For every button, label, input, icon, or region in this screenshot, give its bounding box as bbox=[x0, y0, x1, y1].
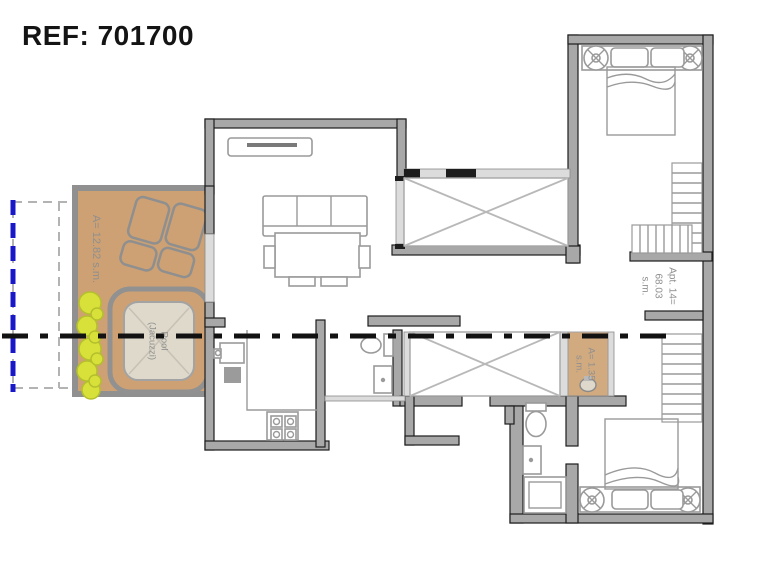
wc-basin-symbol bbox=[374, 366, 392, 393]
living-room bbox=[228, 138, 370, 286]
terrace-area-label: A= 12.82 s.m. bbox=[90, 215, 102, 283]
kitchen-sink-symbol bbox=[214, 343, 244, 363]
guest-wc bbox=[361, 334, 393, 393]
bedroom-bottom bbox=[580, 419, 700, 512]
kitchen-appliance bbox=[224, 367, 241, 383]
apartment-area-label: s.m. bbox=[640, 277, 651, 296]
shower-symbol bbox=[524, 477, 566, 513]
pillow bbox=[651, 48, 684, 67]
floorplan-svg: A= 12.82 s.m. Pool (Jacuzzi) Apt. 14= 68… bbox=[0, 0, 775, 570]
kitchen-hob-symbol bbox=[267, 412, 298, 440]
shaft-lower bbox=[410, 332, 560, 396]
dashed-extension-outline bbox=[13, 202, 75, 388]
sofa bbox=[263, 196, 367, 236]
bedroom-top bbox=[582, 46, 702, 135]
bedside-lamp-symbol bbox=[584, 46, 608, 70]
pool-label: (Jacuzzi) bbox=[147, 322, 158, 360]
bath-basin-symbol bbox=[523, 446, 541, 474]
floorplan-canvas: REF: 701700 bbox=[0, 0, 775, 570]
pillow bbox=[651, 490, 683, 509]
shaft-area-label: A= 1.35 bbox=[586, 347, 597, 380]
apartment-area-label: Apt. 14= bbox=[667, 267, 678, 305]
pillow bbox=[611, 48, 648, 67]
pool-label: Pool bbox=[159, 331, 170, 350]
pillow bbox=[612, 490, 648, 509]
shaft-upper bbox=[404, 178, 568, 246]
stairs-upper bbox=[632, 163, 702, 253]
walls bbox=[205, 35, 713, 524]
bed-mattress bbox=[605, 419, 678, 489]
bedside-lamp-symbol bbox=[580, 488, 604, 512]
kitchen bbox=[214, 330, 318, 440]
bathroom bbox=[523, 403, 566, 513]
shaft-area-label: s.m. bbox=[574, 355, 585, 373]
tv-console bbox=[228, 138, 312, 156]
stairs-lower bbox=[662, 334, 702, 422]
bath-toilet-symbol bbox=[526, 403, 546, 437]
apartment-area-label: 68.03 bbox=[653, 273, 664, 298]
dining-table bbox=[264, 233, 370, 286]
